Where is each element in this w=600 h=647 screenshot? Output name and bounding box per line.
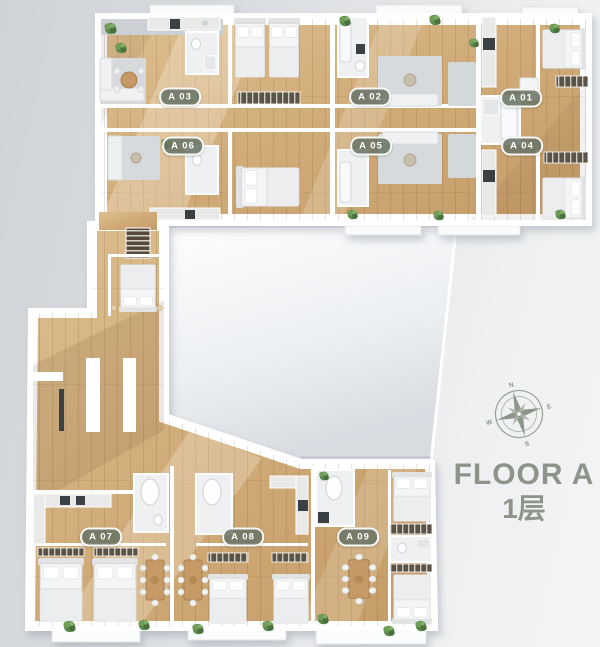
unit-badge-a08: A 08 — [222, 528, 264, 547]
unit-badge-a01: A 01 — [500, 89, 542, 108]
compass-east-label: E — [546, 403, 553, 411]
compass-north-label: N — [508, 381, 515, 389]
floor-plan-page: N E S W A 03 A 02 A 01 A 06 A 05 A 04 A … — [0, 0, 600, 647]
unit-badge-a02: A 02 — [349, 88, 391, 107]
floor-subtitle: 1层 — [452, 494, 596, 525]
roof-terrace — [168, 229, 456, 462]
top-block-floor — [100, 5, 588, 235]
unit-badge-a07: A 07 — [80, 528, 122, 547]
compass-icon: N E S W — [478, 373, 561, 456]
unit-badge-a06: A 06 — [162, 137, 204, 156]
unit-badge-a09: A 09 — [337, 528, 379, 547]
compass-west-label: W — [485, 419, 494, 428]
floor-title-block: FLOOR A 1层 — [452, 458, 596, 525]
unit-badge-a05: A 05 — [350, 137, 392, 156]
unit-badge-a04: A 04 — [501, 137, 543, 156]
elevator-door — [59, 389, 64, 431]
compass-south-label: S — [524, 440, 531, 448]
unit-badge-a03: A 03 — [159, 88, 201, 107]
floor-title: FLOOR A — [452, 458, 596, 491]
